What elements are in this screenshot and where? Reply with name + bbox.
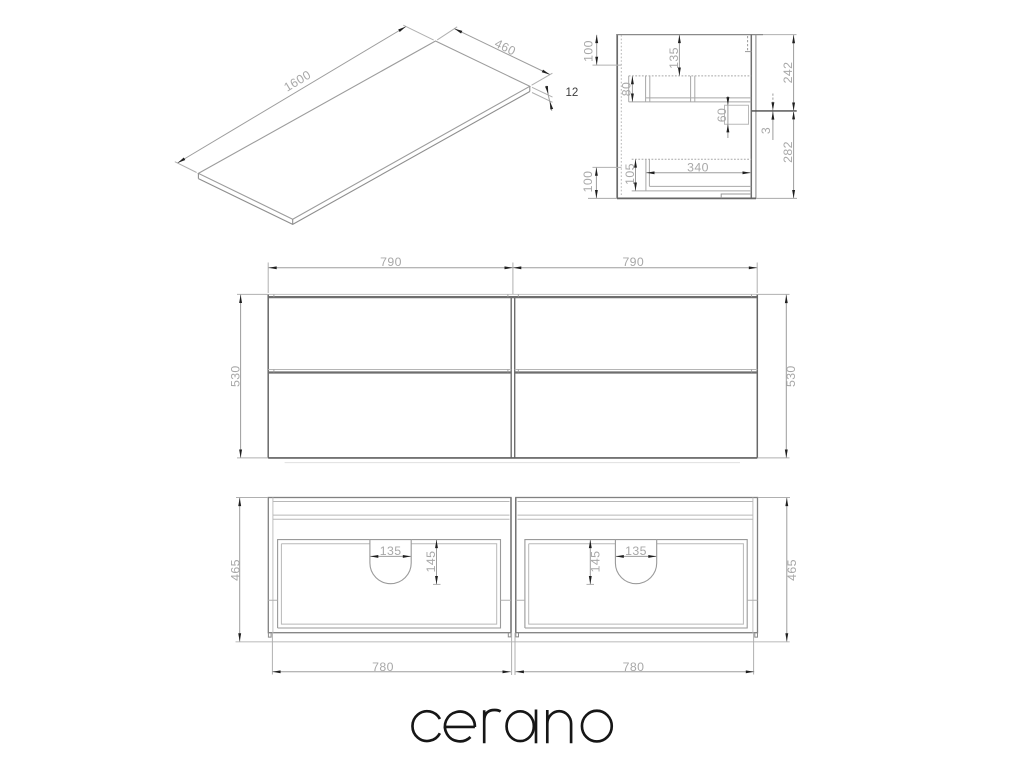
svg-text:145: 145: [589, 551, 603, 573]
svg-text:135: 135: [667, 47, 681, 69]
svg-text:100: 100: [581, 171, 595, 193]
svg-text:145: 145: [424, 551, 438, 573]
svg-text:100: 100: [582, 40, 596, 62]
svg-text:530: 530: [229, 365, 243, 387]
svg-text:780: 780: [372, 660, 394, 674]
svg-text:530: 530: [784, 365, 798, 387]
svg-text:790: 790: [622, 255, 644, 269]
svg-text:60: 60: [715, 108, 729, 122]
svg-text:790: 790: [380, 255, 402, 269]
svg-text:282: 282: [781, 141, 795, 163]
svg-text:465: 465: [228, 559, 242, 581]
svg-text:340: 340: [687, 160, 709, 174]
svg-text:465: 465: [785, 559, 799, 581]
svg-text:3: 3: [759, 127, 773, 134]
svg-text:135: 135: [380, 544, 402, 558]
svg-text:242: 242: [781, 62, 795, 84]
svg-text:12: 12: [566, 87, 579, 99]
svg-text:135: 135: [625, 544, 647, 558]
svg-text:780: 780: [623, 660, 645, 674]
svg-text:105: 105: [623, 163, 637, 185]
svg-text:80: 80: [620, 82, 634, 96]
